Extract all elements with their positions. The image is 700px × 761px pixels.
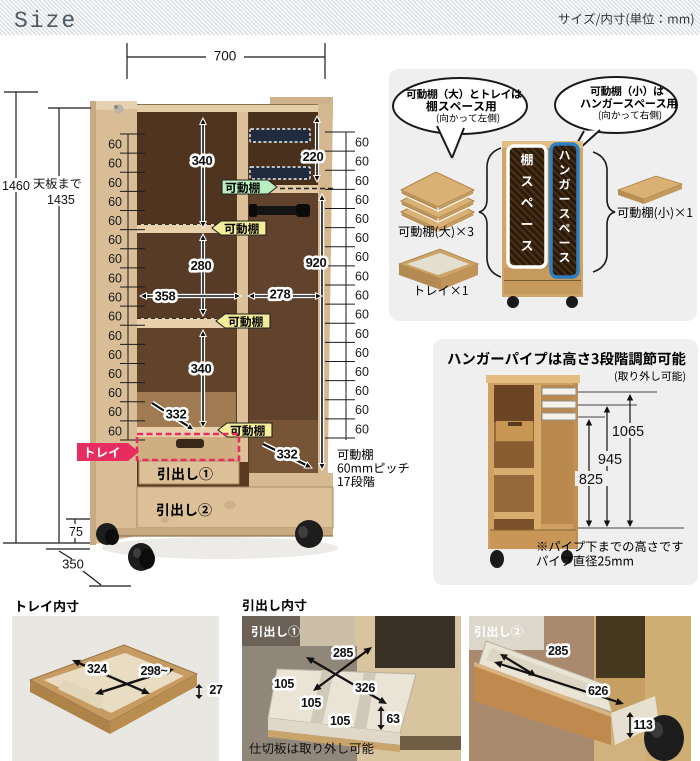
- svg-text:60: 60: [355, 422, 369, 436]
- svg-text:60: 60: [108, 367, 122, 381]
- svg-text:60: 60: [108, 424, 122, 438]
- svg-text:Size: Size: [14, 8, 77, 34]
- svg-text:60: 60: [108, 310, 122, 324]
- svg-text:60: 60: [108, 252, 122, 266]
- svg-text:60: 60: [355, 155, 369, 169]
- svg-text:298~: 298~: [141, 664, 168, 678]
- svg-text:60: 60: [355, 327, 369, 341]
- svg-text:945: 945: [598, 452, 622, 468]
- svg-text:285: 285: [333, 646, 353, 660]
- svg-text:105: 105: [301, 696, 321, 710]
- svg-text:626: 626: [588, 684, 608, 698]
- svg-text:60: 60: [355, 346, 369, 360]
- svg-text:324: 324: [87, 662, 107, 676]
- svg-text:60: 60: [355, 231, 369, 245]
- svg-text:60: 60: [108, 233, 122, 247]
- svg-text:60: 60: [355, 308, 369, 322]
- svg-text:60: 60: [108, 138, 122, 152]
- svg-text:60: 60: [355, 250, 369, 264]
- svg-text:60: 60: [355, 174, 369, 188]
- svg-text:105: 105: [274, 677, 294, 691]
- svg-text:920: 920: [306, 255, 327, 270]
- svg-text:60: 60: [355, 136, 369, 150]
- svg-text:60: 60: [355, 269, 369, 283]
- svg-text:280: 280: [191, 258, 212, 273]
- svg-text:60: 60: [108, 271, 122, 285]
- svg-text:27: 27: [209, 683, 223, 697]
- svg-text:340: 340: [192, 153, 213, 168]
- svg-text:60: 60: [108, 291, 122, 305]
- svg-text:825: 825: [579, 472, 603, 488]
- svg-text:358: 358: [155, 288, 176, 303]
- svg-text:1065: 1065: [612, 424, 644, 440]
- svg-text:350: 350: [62, 557, 84, 572]
- svg-text:60: 60: [355, 289, 369, 303]
- svg-text:326: 326: [355, 681, 375, 695]
- svg-text:75: 75: [69, 525, 83, 539]
- svg-text:60: 60: [108, 329, 122, 343]
- svg-text:1435: 1435: [47, 193, 75, 207]
- svg-text:63: 63: [386, 712, 400, 726]
- svg-text:700: 700: [214, 49, 237, 64]
- svg-text:60: 60: [108, 195, 122, 209]
- svg-text:60: 60: [355, 403, 369, 417]
- svg-text:285: 285: [548, 644, 568, 658]
- svg-text:60: 60: [108, 176, 122, 190]
- svg-text:60: 60: [108, 386, 122, 400]
- svg-text:60: 60: [108, 348, 122, 362]
- svg-text:60: 60: [355, 193, 369, 207]
- svg-text:220: 220: [303, 149, 324, 164]
- svg-text:60: 60: [355, 384, 369, 398]
- svg-text:278: 278: [270, 286, 291, 301]
- svg-text:60: 60: [355, 212, 369, 226]
- svg-text:60: 60: [108, 405, 122, 419]
- svg-text:332: 332: [166, 406, 187, 421]
- svg-text:332: 332: [277, 446, 298, 461]
- svg-text:113: 113: [633, 718, 653, 732]
- svg-text:1460: 1460: [2, 179, 30, 193]
- svg-text:105: 105: [330, 714, 350, 728]
- svg-text:60: 60: [108, 157, 122, 171]
- svg-text:60: 60: [108, 214, 122, 228]
- svg-text:60: 60: [355, 365, 369, 379]
- svg-text:340: 340: [191, 361, 212, 376]
